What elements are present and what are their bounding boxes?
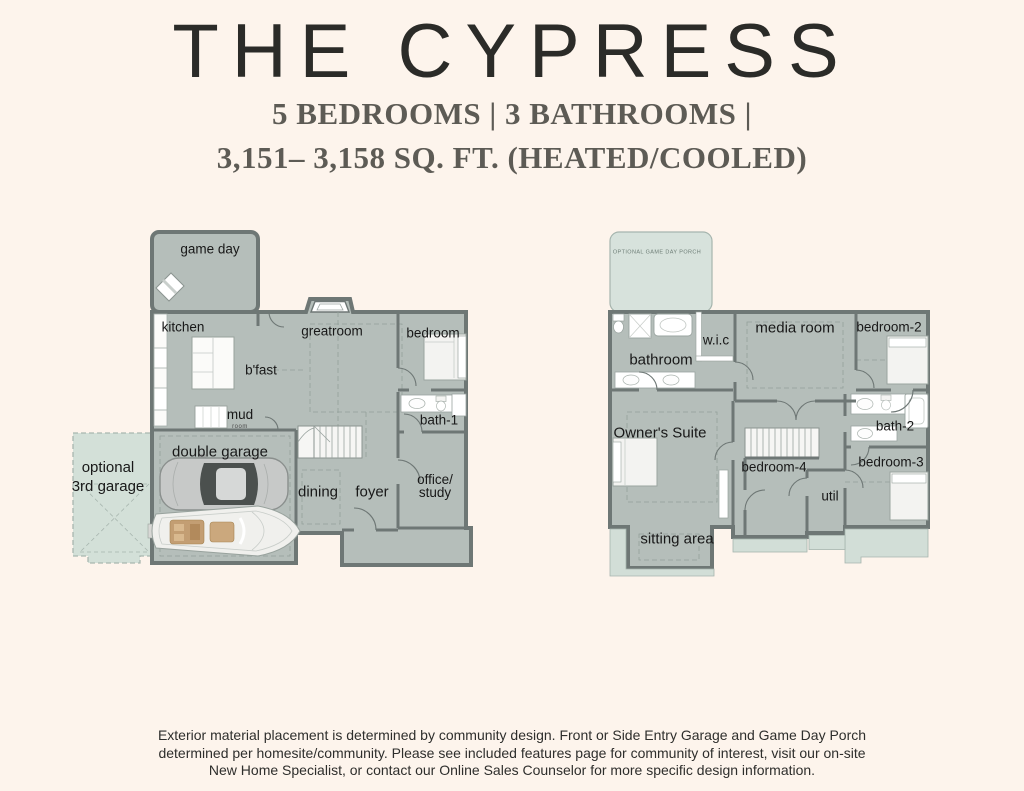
label-optional-game-day-porch: OPTIONAL GAME DAY PORCH <box>613 250 701 256</box>
disclaimer-text: Exterior material placement is determine… <box>0 727 1024 780</box>
room-label-bfast: b'fast <box>245 363 277 377</box>
disclaimer-line-3: New Home Specialist, or contact our Onli… <box>0 762 1024 780</box>
boat-top-view-icon <box>148 506 300 556</box>
optional-game-day-porch-area <box>610 232 712 312</box>
disclaimer-line-2: determined per homesite/community. Pleas… <box>0 745 1024 763</box>
room-label-wic: w.i.c <box>703 333 729 347</box>
room-label-mud: mud room <box>227 408 253 434</box>
room-label-double-garage: double garage <box>172 445 268 460</box>
room-label-kitchen: kitchen <box>162 320 205 334</box>
room-label-media-room: media room <box>755 321 834 336</box>
second-floor-plan-drawing <box>595 220 960 580</box>
mud-room-bench <box>195 406 227 428</box>
staircase <box>298 426 362 458</box>
room-label-greatroom: greatroom <box>301 324 363 338</box>
first-floor-plan: game day kitchen greatroom bedroom b'fas… <box>70 220 490 580</box>
room-label-sitting-area: sitting area <box>640 532 713 547</box>
disclaimer-line-1: Exterior material placement is determine… <box>0 727 1024 745</box>
room-label-foyer: foyer <box>355 485 388 500</box>
car-top-view-icon <box>160 454 288 514</box>
room-label-bedroom2: bedroom-2 <box>856 320 921 334</box>
room-label-optional-3rd-garage: optional 3rd garage <box>72 458 145 496</box>
room-label-game-day: game day <box>180 242 239 256</box>
room-label-bath1: bath-1 <box>420 413 458 427</box>
subtitle-sqft: 3,151– 3,158 SQ. FT. (HEATED/COOLED) <box>0 142 1024 173</box>
greatroom-fireplace-icon <box>311 302 349 313</box>
room-label-bath2: bath-2 <box>876 419 914 433</box>
room-label-bedroom4: bedroom-4 <box>741 460 806 474</box>
subtitle-bed-bath: 5 BEDROOMS | 3 BATHROOMS | <box>0 98 1024 129</box>
second-floor-plan: OPTIONAL GAME DAY PORCH bathroom w.i.c m… <box>595 220 960 580</box>
room-label-bedroom3: bedroom-3 <box>858 455 923 469</box>
room-label-bathroom: bathroom <box>629 353 692 368</box>
closet-wall <box>719 470 728 518</box>
room-label-office-study: office/ study <box>417 473 453 499</box>
room-label-owners-suite: Owner's Suite <box>614 426 707 441</box>
optional-3rd-garage-area <box>73 433 155 563</box>
room-label-util: util <box>821 489 838 503</box>
first-floor-plan-drawing <box>70 220 490 580</box>
page-title: THE CYPRESS <box>0 14 1024 90</box>
room-label-dining: dining <box>298 485 338 500</box>
flyer-page: THE CYPRESS 5 BEDROOMS | 3 BATHROOMS | 3… <box>0 0 1024 791</box>
bedroom2-bed-icon <box>887 336 928 384</box>
staircase-2 <box>745 428 819 458</box>
bed-icon <box>424 334 466 380</box>
bedroom3-bed-icon <box>890 472 928 520</box>
room-label-bedroom: bedroom <box>406 326 459 340</box>
owners-bed-icon <box>613 438 657 486</box>
